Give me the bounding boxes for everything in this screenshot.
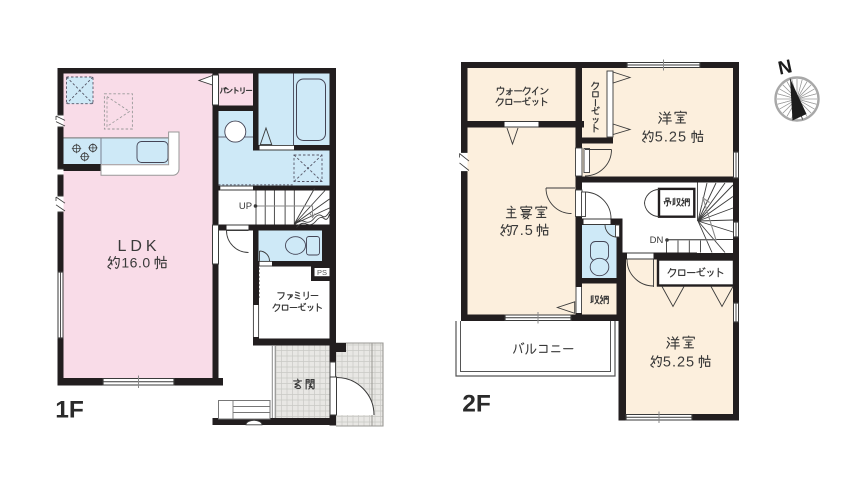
svg-text:PS: PS xyxy=(317,268,327,277)
svg-text:7.5: 7.5 xyxy=(511,223,534,239)
svg-text:UP: UP xyxy=(239,201,252,212)
svg-text:2F: 2F xyxy=(462,391,491,418)
svg-text:LDK: LDK xyxy=(117,238,160,255)
svg-text:5.25: 5.25 xyxy=(655,130,687,146)
svg-text:5.25: 5.25 xyxy=(663,355,695,371)
svg-text:16.0: 16.0 xyxy=(121,255,150,271)
svg-text:1F: 1F xyxy=(55,397,84,424)
svg-text:DN: DN xyxy=(650,235,664,246)
